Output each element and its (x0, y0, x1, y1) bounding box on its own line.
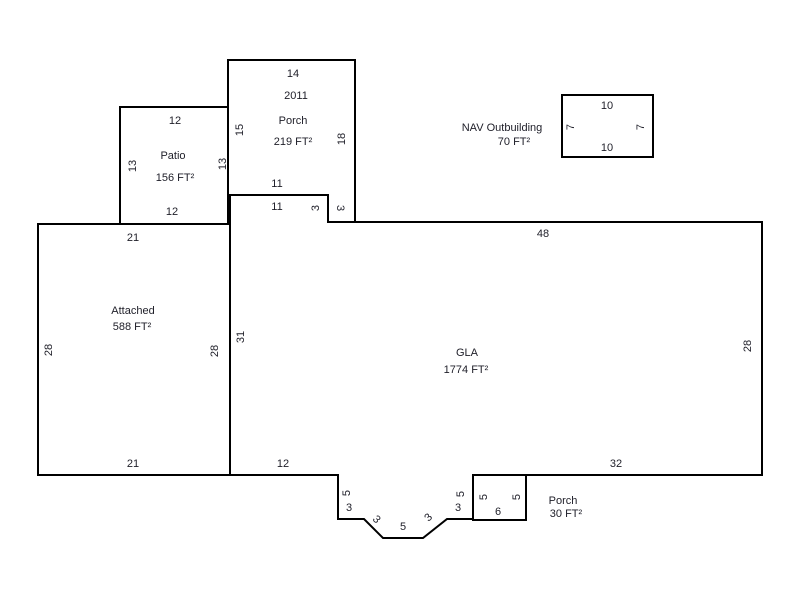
dim-gla-bay-bottom: 5 (400, 521, 406, 533)
dim-attached-top: 21 (127, 232, 139, 244)
dim-gla-right: 28 (742, 340, 754, 352)
dim-top-porch-step: 3 (334, 205, 346, 211)
attached-area: 588 FT² (113, 321, 152, 333)
dim-patio-right: 13 (217, 158, 229, 170)
dim-outbuilding-left: 7 (565, 124, 577, 130)
floor-plan-sketch: 14 2011 Porch 219 FT² 15 18 11 3 12 Pati… (0, 0, 800, 600)
bottom-porch-label: Porch (549, 495, 578, 507)
top-porch-year-built: 2011 (284, 90, 308, 102)
attached-label: Attached (111, 305, 154, 317)
dim-attached-right: 28 (209, 345, 221, 357)
top-porch-label: Porch (279, 115, 308, 127)
sketch-canvas: 14 2011 Porch 219 FT² 15 18 11 3 12 Pati… (0, 0, 800, 600)
dim-gla-bay-right-vertical: 5 (455, 491, 467, 497)
gla-label: GLA (456, 347, 479, 359)
dim-top-porch-right: 18 (336, 133, 348, 145)
dim-patio-left: 13 (127, 160, 139, 172)
dim-gla-bottom-left: 12 (277, 458, 289, 470)
outbuilding-area: 70 FT² (498, 136, 531, 148)
dim-gla-bay-right-horizontal: 3 (455, 502, 461, 514)
attached-garage-outline (38, 224, 230, 475)
dim-gla-bottom-right: 32 (610, 458, 622, 470)
dim-gla-left-step: 3 (310, 205, 322, 211)
dim-bottom-porch-left: 5 (478, 494, 490, 500)
dim-outbuilding-right: 7 (635, 124, 647, 130)
outbuilding-label: NAV Outbuilding (462, 122, 543, 134)
dim-outbuilding-top: 10 (601, 100, 613, 112)
dim-top-porch-top: 14 (287, 68, 299, 80)
dim-patio-bottom: 12 (166, 206, 178, 218)
dim-patio-top: 12 (169, 115, 181, 127)
top-porch-area: 219 FT² (274, 136, 313, 148)
dim-gla-top-left: 11 (271, 201, 282, 213)
dim-outbuilding-bottom: 10 (601, 142, 613, 154)
dim-top-porch-left: 15 (234, 124, 246, 136)
gla-area: 1774 FT² (444, 364, 489, 376)
patio-area: 156 FT² (156, 172, 195, 184)
dim-bottom-porch-bottom: 6 (495, 506, 501, 518)
dim-bottom-porch-right: 5 (511, 494, 523, 500)
dim-gla-bay-left-vertical: 5 (341, 490, 353, 496)
dim-attached-bottom: 21 (127, 458, 139, 470)
dim-gla-top: 48 (537, 228, 549, 240)
dim-attached-left: 28 (43, 344, 55, 356)
bottom-porch-area: 30 FT² (550, 508, 583, 520)
dim-top-porch-bottom: 11 (271, 178, 282, 190)
patio-label: Patio (160, 150, 185, 162)
dim-gla-left: 31 (235, 331, 247, 343)
dim-gla-bay-left-horizontal: 3 (346, 502, 352, 514)
